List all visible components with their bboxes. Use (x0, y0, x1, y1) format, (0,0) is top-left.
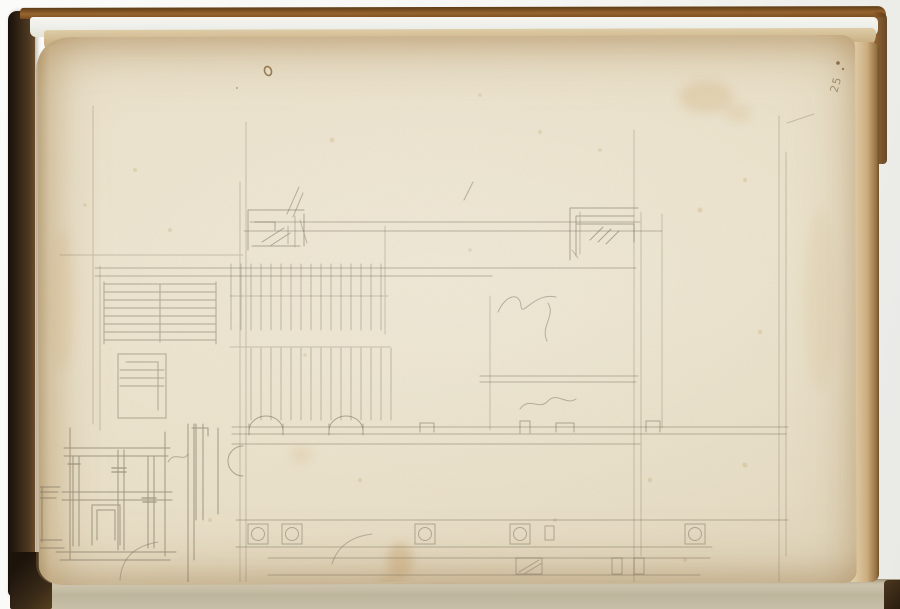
sketchbook-page (37, 35, 856, 585)
photo-backdrop: 25 (0, 0, 900, 609)
page-gutter-shadow (36, 44, 76, 584)
book-spine-left (8, 11, 35, 597)
binding-corner-bottom-right (884, 580, 900, 609)
